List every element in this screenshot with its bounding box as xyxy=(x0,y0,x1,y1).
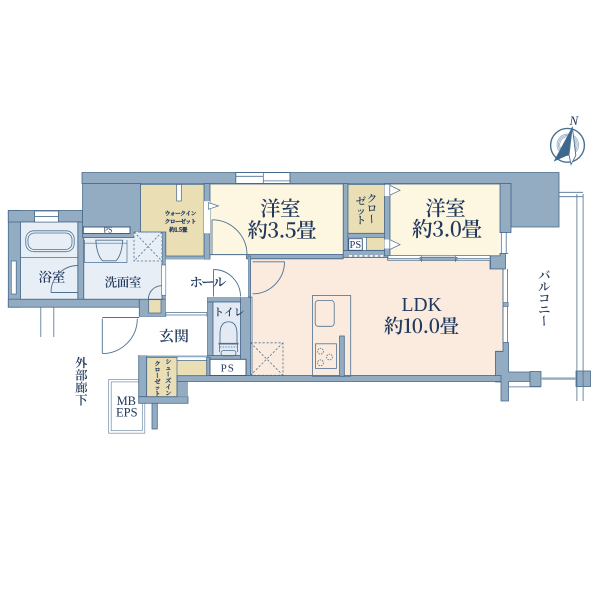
svg-text:PS: PS xyxy=(104,225,113,234)
svg-text:PS: PS xyxy=(350,240,362,251)
svg-text:PS: PS xyxy=(221,363,235,375)
svg-text:LDK: LDK xyxy=(401,295,441,316)
svg-text:N: N xyxy=(568,113,579,128)
svg-text:EPS: EPS xyxy=(116,406,138,420)
